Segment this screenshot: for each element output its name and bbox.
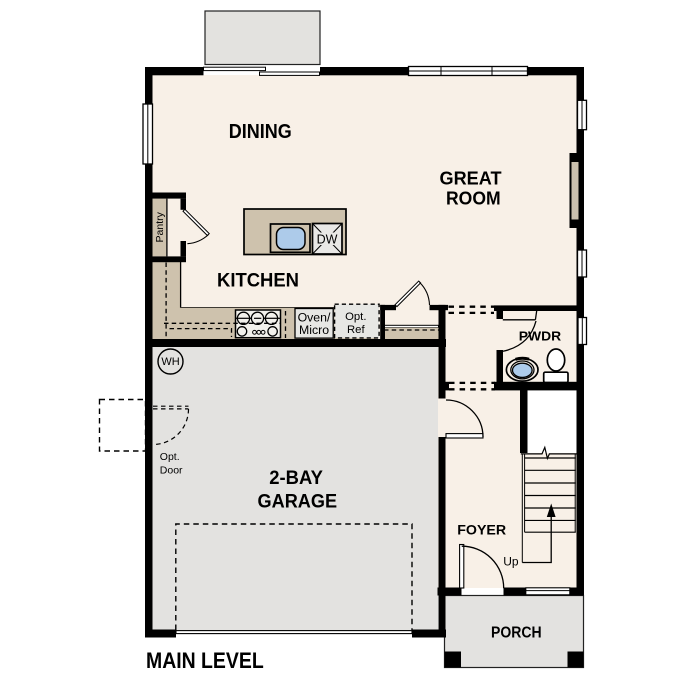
svg-text:ROOM: ROOM xyxy=(446,188,501,209)
svg-text:MAIN LEVEL: MAIN LEVEL xyxy=(146,648,264,673)
svg-text:GARAGE: GARAGE xyxy=(258,491,338,512)
svg-text:Pantry: Pantry xyxy=(154,211,166,242)
svg-text:KITCHEN: KITCHEN xyxy=(217,270,299,291)
svg-text:DINING: DINING xyxy=(229,120,292,143)
svg-text:PWDR: PWDR xyxy=(519,329,562,344)
svg-text:Opt.: Opt. xyxy=(160,451,180,463)
svg-text:Up: Up xyxy=(503,554,519,568)
svg-text:Micro: Micro xyxy=(299,323,329,337)
svg-text:2-BAY: 2-BAY xyxy=(269,468,323,489)
svg-text:DW: DW xyxy=(317,233,338,247)
svg-text:Opt.: Opt. xyxy=(345,311,366,323)
svg-text:Ref: Ref xyxy=(347,324,365,336)
svg-text:PORCH: PORCH xyxy=(491,625,542,642)
svg-text:WH: WH xyxy=(161,356,179,368)
svg-text:GREAT: GREAT xyxy=(440,167,503,188)
svg-text:FOYER: FOYER xyxy=(457,523,506,539)
svg-text:Door: Door xyxy=(160,465,183,477)
